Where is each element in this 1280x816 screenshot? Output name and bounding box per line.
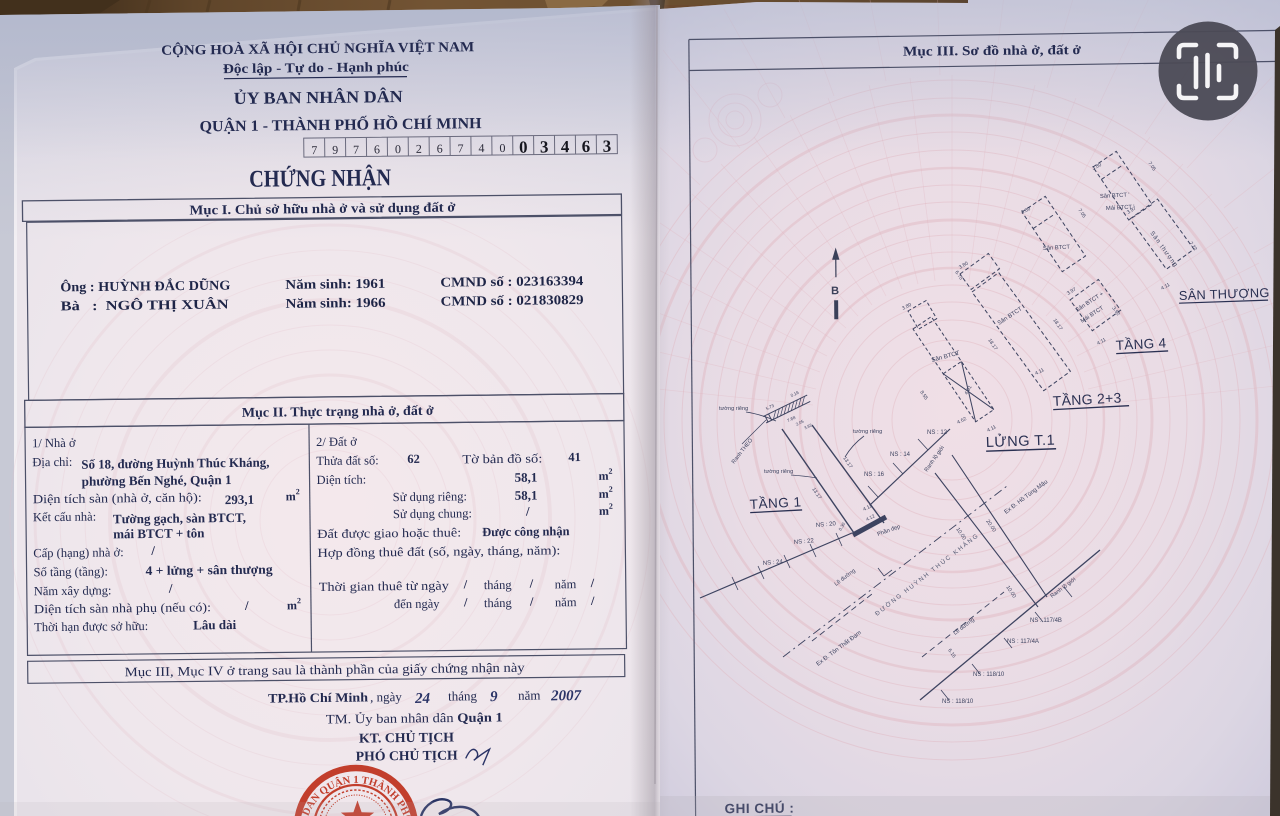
svg-text:Được công nhận: Được công nhận <box>482 524 570 539</box>
svg-text:phường Bến Nghé, Quận 1: phường Bến Nghé, Quận 1 <box>81 472 231 489</box>
svg-text:Năm sinh: 1961: Năm sinh: 1961 <box>285 276 385 292</box>
svg-text:TP.Hồ Chí Minh: TP.Hồ Chí Minh <box>268 689 369 705</box>
svg-text:2: 2 <box>608 467 612 476</box>
svg-text:Kết cấu nhà:: Kết cấu nhà: <box>33 510 96 525</box>
svg-text:6: 6 <box>582 137 591 156</box>
svg-text:tháng: tháng <box>484 596 513 610</box>
svg-text:/: / <box>525 504 530 519</box>
svg-text:NS : 14: NS : 14 <box>890 452 911 458</box>
svg-text:Tường gạch, sàn BTCT,: Tường gạch, sàn BTCT, <box>113 510 246 527</box>
svg-text:năm: năm <box>518 688 541 703</box>
svg-text:TẦNG 1: TẦNG 1 <box>749 494 801 512</box>
svg-text:2007: 2007 <box>550 688 582 704</box>
svg-text:1/ Nhà ở: 1/ Nhà ở <box>32 436 76 450</box>
svg-text:7: 7 <box>458 141 464 155</box>
svg-text:/: / <box>590 594 595 608</box>
svg-text:7: 7 <box>311 143 317 157</box>
svg-text:/: / <box>529 577 534 591</box>
svg-text:3: 3 <box>540 137 549 156</box>
svg-text:41: 41 <box>568 450 581 464</box>
svg-text:Diện tích sàn nhà phụ (nếu có): Diện tích sàn nhà phụ (nếu có): <box>34 600 211 616</box>
svg-text:đến ngày: đến ngày <box>394 597 440 612</box>
svg-text:Cấp (hạng) nhà ở:: Cấp (hạng) nhà ở: <box>33 545 123 560</box>
svg-text:m: m <box>599 504 609 518</box>
svg-text:Số tầng (tầng):: Số tầng (tầng): <box>34 564 108 579</box>
svg-text:CMND số : 021830829: CMND số : 021830829 <box>440 292 583 309</box>
svg-text:Ông : HUỲNH ĐẮC DŨNG: Ông : HUỲNH ĐẮC DŨNG <box>60 278 231 295</box>
svg-text:Sử dụng riêng:: Sử dụng riêng: <box>393 489 467 504</box>
svg-text:9: 9 <box>332 143 338 157</box>
svg-text:/: / <box>463 595 468 609</box>
svg-text:năm: năm <box>555 577 577 591</box>
svg-text:/: / <box>463 577 468 591</box>
svg-text:tường riêng: tường riêng <box>719 406 748 412</box>
svg-text:Mục I. Chủ sở hữu nhà ở và sử: Mục I. Chủ sở hữu nhà ở và sử dụng đất ở <box>189 199 456 217</box>
svg-text:/: / <box>244 598 249 613</box>
svg-text:2: 2 <box>609 502 613 511</box>
svg-text:tháng: tháng <box>484 578 513 592</box>
svg-text:m: m <box>286 489 296 503</box>
svg-text:năm: năm <box>555 595 577 609</box>
svg-text:Bà : NGÔ THỊ XUÂN: Bà : NGÔ THỊ XUÂN <box>60 297 228 314</box>
svg-text:6: 6 <box>374 142 380 156</box>
svg-text:TM. Ủy ban nhân dân Quận 1: TM. Ủy ban nhân dân Quận 1 <box>326 709 503 726</box>
svg-text:2: 2 <box>296 487 300 496</box>
svg-text:4: 4 <box>478 141 484 155</box>
svg-text:NS : 117/4A: NS : 117/4A <box>1007 639 1039 645</box>
svg-text:PHÓ CHỦ TỊCH: PHÓ CHỦ TỊCH <box>356 747 459 763</box>
svg-text:3: 3 <box>603 137 612 156</box>
svg-text:Thời hạn được sở hữu:: Thời hạn được sở hữu: <box>34 619 148 634</box>
svg-text:/: / <box>529 595 534 609</box>
svg-text:QUẬN 1 - THÀNH PHỐ HỒ CHÍ MINH: QUẬN 1 - THÀNH PHỐ HỒ CHÍ MINH <box>199 114 481 135</box>
svg-text:NS : 118/10: NS : 118/10 <box>942 699 974 705</box>
svg-text:, ngày: , ngày <box>370 689 402 704</box>
svg-text:Tờ bản đồ số:: Tờ bản đồ số: <box>462 451 542 466</box>
svg-text:mái BTCT + tôn: mái BTCT + tôn <box>113 525 205 541</box>
svg-text:tháng: tháng <box>448 688 478 703</box>
svg-text:4: 4 <box>561 137 570 156</box>
svg-text:24: 24 <box>414 691 431 707</box>
svg-text:m: m <box>287 598 297 612</box>
svg-text:2/ Đất ở: 2/ Đất ở <box>316 435 357 449</box>
svg-text:293,1: 293,1 <box>225 492 254 507</box>
svg-text:Số 18, đường Huỳnh Thúc Kháng,: Số 18, đường Huỳnh Thúc Kháng, <box>81 455 269 472</box>
svg-text:58,1: 58,1 <box>515 488 538 503</box>
svg-text:0: 0 <box>499 141 505 155</box>
svg-text:KT. CHỦ TỊCH: KT. CHỦ TỊCH <box>359 729 455 745</box>
svg-text:NS : 118/10: NS : 118/10 <box>973 672 1005 678</box>
svg-text:Thửa đất số:: Thửa đất số: <box>316 453 378 468</box>
svg-text:Diện tích sàn (nhà ở, căn hộ):: Diện tích sàn (nhà ở, căn hộ): <box>33 490 202 506</box>
svg-text:m: m <box>599 487 609 501</box>
svg-text:tường riêng: tường riêng <box>764 469 793 475</box>
svg-text:ỦY BAN NHÂN DÂN: ỦY BAN NHÂN DÂN <box>234 87 404 108</box>
svg-text:/: / <box>168 581 173 596</box>
svg-text:2: 2 <box>609 485 613 494</box>
svg-text:Đất được giao hoặc thuê:: Đất được giao hoặc thuê: <box>317 525 461 541</box>
svg-text:CMND số : 023163394: CMND số : 023163394 <box>440 273 583 290</box>
svg-text:Hợp đồng thuê đất (số, ngày, t: Hợp đồng thuê đất (số, ngày, tháng, năm)… <box>317 543 560 560</box>
svg-text:NS : 16: NS : 16 <box>864 472 885 478</box>
svg-text:Địa chỉ:: Địa chỉ: <box>32 455 72 469</box>
svg-text:tường riêng: tường riêng <box>853 429 882 435</box>
svg-text:B: B <box>831 285 839 297</box>
svg-text:Diện tích:: Diện tích: <box>316 472 366 487</box>
svg-text:6: 6 <box>437 142 443 156</box>
svg-text:9: 9 <box>490 689 498 705</box>
svg-text:62: 62 <box>407 452 420 466</box>
svg-text:CHỨNG NHẬN: CHỨNG NHẬN <box>249 165 392 193</box>
svg-text:/: / <box>150 543 155 558</box>
svg-text:0: 0 <box>395 142 401 156</box>
svg-text:NS : 117/4B: NS : 117/4B <box>1030 618 1062 624</box>
svg-text:2: 2 <box>297 596 301 605</box>
svg-text:Mục II. Thực trạng nhà ở, đất: Mục II. Thực trạng nhà ở, đất ở <box>242 403 435 420</box>
svg-text:Thời gian thuê từ ngày: Thời gian thuê từ ngày <box>319 579 450 594</box>
svg-text:0: 0 <box>519 138 528 157</box>
svg-text:Sử dụng chung:: Sử dụng chung: <box>393 506 472 521</box>
svg-text:4 + lửng + sân thượng: 4 + lửng + sân thượng <box>145 562 273 578</box>
svg-text:7: 7 <box>353 143 359 157</box>
svg-text:2: 2 <box>416 142 422 156</box>
svg-text:Mục III. Sơ đồ nhà ở, đất ở: Mục III. Sơ đồ nhà ở, đất ở <box>903 42 1082 59</box>
svg-text:/: / <box>590 576 595 590</box>
svg-text:NS : 12: NS : 12 <box>927 430 948 436</box>
svg-text:Lâu dài: Lâu dài <box>193 617 237 632</box>
svg-text:Năm xây dựng:: Năm xây dựng: <box>34 583 112 598</box>
svg-text:m: m <box>598 469 608 483</box>
svg-text:Năm sinh: 1966: Năm sinh: 1966 <box>285 295 385 311</box>
svg-text:TẦNG 4: TẦNG 4 <box>1115 335 1166 353</box>
svg-text:58,1: 58,1 <box>514 470 537 485</box>
svg-text:Độc lập - Tự do - Hạnh phúc: Độc lập - Tự do - Hạnh phúc <box>223 59 409 76</box>
